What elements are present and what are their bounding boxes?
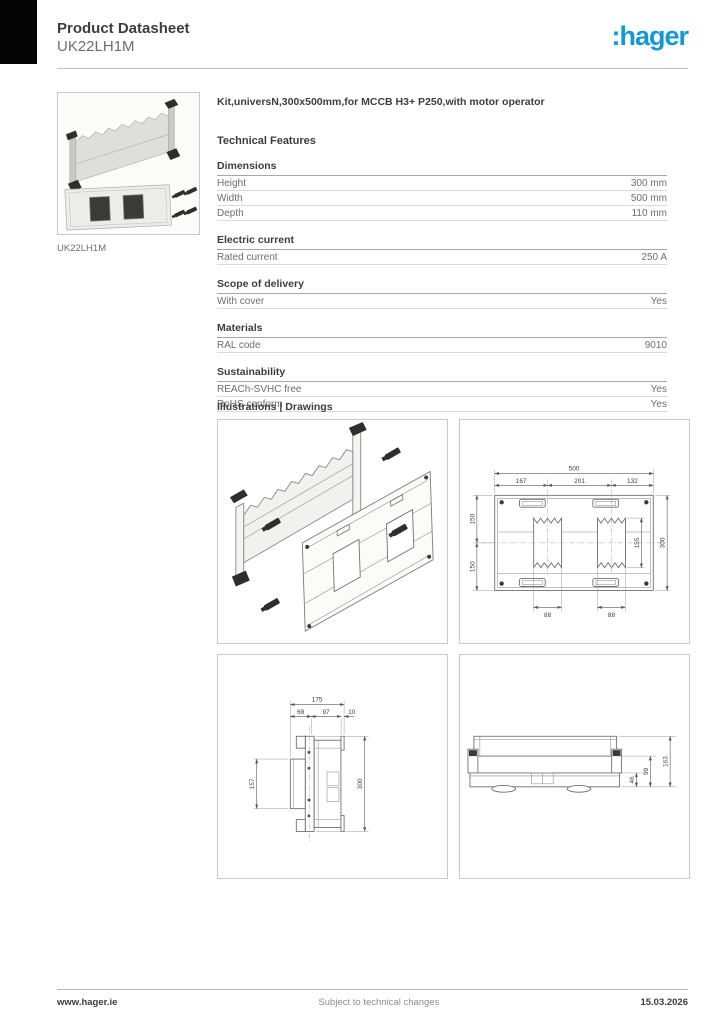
technical-features-heading: Technical Features <box>217 135 667 147</box>
footer-divider <box>57 989 688 990</box>
dim-label: 157 <box>249 778 256 789</box>
fastener-screws <box>171 187 197 219</box>
section-dimensions: Dimensions Height 300 mm Width 500 mm De… <box>217 160 667 221</box>
spec-label: Height <box>217 178 246 189</box>
drawings-grid: 500 167 201 132 150 150 <box>217 419 690 879</box>
page-corner-mark <box>0 0 37 64</box>
spec-label: REACh-SVHC free <box>217 384 301 395</box>
technical-specs: Kit,universN,300x500mm,for MCCB H3+ P250… <box>217 92 667 412</box>
illustrations-heading: Illustrations | Drawings <box>217 401 333 413</box>
spec-value: 500 mm <box>631 193 667 204</box>
datasheet-page: Product Datasheet UK22LH1M :hager <box>0 0 724 1024</box>
bottom-view-graphic: 46 99 163 <box>460 655 689 878</box>
front-view-graphic: 500 167 201 132 150 150 <box>460 420 689 643</box>
spec-label: Width <box>217 193 243 204</box>
footer-website-link[interactable]: www.hager.ie <box>57 997 117 1008</box>
dim-label: 300 <box>660 537 667 548</box>
dim-label: 175 <box>312 697 323 704</box>
product-photo-graphic <box>58 93 199 234</box>
section-title: Dimensions <box>217 160 667 176</box>
dim-label: 201 <box>574 478 585 485</box>
spec-row: Width 500 mm <box>217 191 667 206</box>
spec-label: Rated current <box>217 252 278 263</box>
header-divider <box>57 68 688 69</box>
dim-label: 88 <box>544 612 552 619</box>
dim-label: 46 <box>629 776 636 784</box>
dim-label: 68 <box>297 709 305 716</box>
dim-label: 167 <box>516 478 527 485</box>
spec-label: With cover <box>217 296 264 307</box>
page-title: Product Datasheet <box>57 20 688 38</box>
product-description: Kit,universN,300x500mm,for MCCB H3+ P250… <box>217 96 667 108</box>
section-title: Materials <box>217 322 667 338</box>
dim-label: 150 <box>469 561 476 572</box>
dim-label: 88 <box>608 612 616 619</box>
product-photo-caption: UK22LH1M <box>57 243 106 254</box>
isometric-exploded-graphic <box>218 420 447 643</box>
spec-value: 110 mm <box>632 208 667 219</box>
footer-date: 15.03.2026 <box>640 997 688 1008</box>
rail-assembly <box>66 99 180 192</box>
spec-value: Yes <box>651 296 667 307</box>
section-electric-current: Electric current Rated current 250 A <box>217 234 667 265</box>
section-materials: Materials RAL code 9010 <box>217 322 667 353</box>
dim-label: 155 <box>634 537 641 548</box>
drawing-front-view: 500 167 201 132 150 150 <box>459 419 690 644</box>
section-scope-of-delivery: Scope of delivery With cover Yes <box>217 278 667 309</box>
side-view-graphic: 175 68 97 10 157 300 <box>218 655 447 878</box>
dim-label: 500 <box>569 466 580 473</box>
hager-logo: :hager <box>611 21 688 52</box>
product-photo <box>57 92 200 235</box>
spec-row: Height 300 mm <box>217 176 667 191</box>
cover-plate <box>65 185 171 230</box>
spec-row: REACh-SVHC free Yes <box>217 382 667 397</box>
spec-value: 250 A <box>641 252 667 263</box>
dim-label: 99 <box>643 767 650 775</box>
spec-value: Yes <box>651 399 667 410</box>
spec-label: Depth <box>217 208 244 219</box>
product-reference: UK22LH1M <box>57 38 688 56</box>
dim-label: 163 <box>663 756 670 767</box>
dim-label: 10 <box>348 709 356 716</box>
side-profile <box>290 726 344 841</box>
spec-label: RAL code <box>217 340 261 351</box>
section-title: Scope of delivery <box>217 278 667 294</box>
drawing-bottom-view: 46 99 163 <box>459 654 690 879</box>
dim-label: 132 <box>627 478 638 485</box>
spec-value: 300 mm <box>631 178 667 189</box>
section-title: Sustainability <box>217 366 667 382</box>
spec-row: RAL code 9010 <box>217 338 667 353</box>
dimension-lines: 46 99 163 <box>619 736 676 787</box>
footer: www.hager.ie Subject to technical change… <box>57 997 688 1008</box>
section-title: Electric current <box>217 234 667 250</box>
spec-row: With cover Yes <box>217 294 667 309</box>
header: Product Datasheet UK22LH1M :hager <box>57 20 688 56</box>
drawing-isometric-view <box>217 419 448 644</box>
footer-notice: Subject to technical changes <box>117 997 640 1008</box>
spec-row: Depth 110 mm <box>217 206 667 221</box>
dim-label: 150 <box>469 513 476 524</box>
drawing-side-view: 175 68 97 10 157 300 <box>217 654 448 879</box>
spec-row: Rated current 250 A <box>217 250 667 265</box>
spec-value: 9010 <box>645 340 667 351</box>
bottom-profile <box>468 736 622 792</box>
spec-value: Yes <box>651 384 667 395</box>
dim-label: 300 <box>357 778 364 789</box>
dim-label: 97 <box>322 709 330 716</box>
